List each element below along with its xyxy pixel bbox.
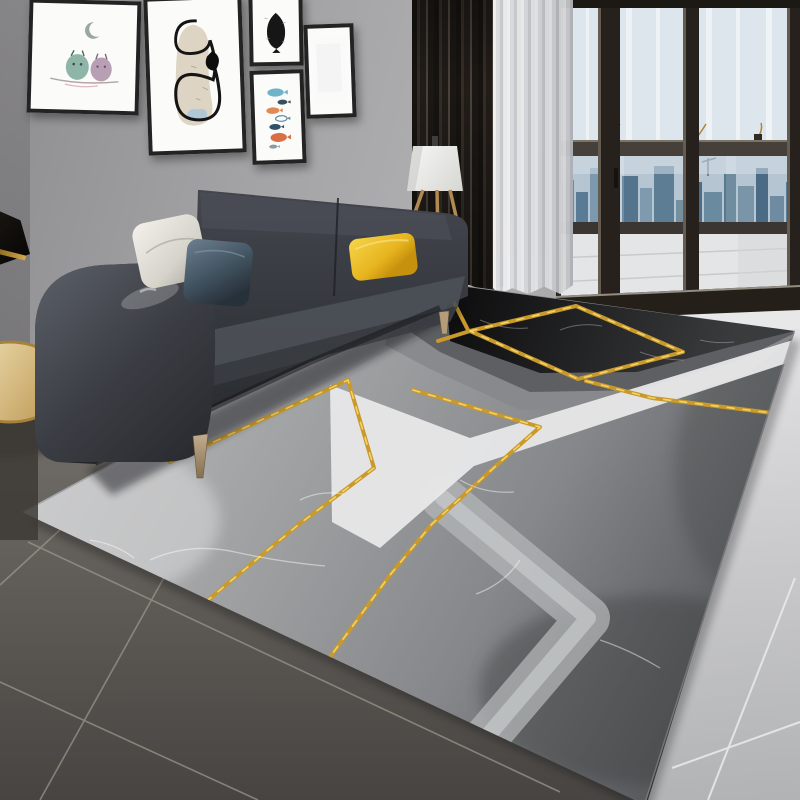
gallery-frame-fish-silhouette <box>248 0 303 66</box>
gallery-frame-fish-school <box>249 69 306 165</box>
owl-print-art <box>37 9 131 105</box>
fish-silhouette-art <box>258 3 295 58</box>
branch <box>50 78 118 84</box>
rug-light-chevron <box>440 498 588 792</box>
balcony-sliding-door <box>556 0 800 340</box>
balcony-view <box>556 0 800 340</box>
sheer-curtain <box>493 0 573 294</box>
balcony-window-sill <box>556 222 800 234</box>
gallery-frame-blank-print <box>303 23 356 119</box>
abstract-line-art <box>157 7 234 143</box>
marble-veins <box>90 480 660 668</box>
living-room-scene: Modern living room: charcoal fabric sofa… <box>0 0 800 800</box>
crescent-moon <box>85 22 100 39</box>
door-handle <box>614 168 618 188</box>
dark-curtain <box>412 0 504 292</box>
gallery-frame-abstract-print <box>143 0 246 156</box>
floor-grout-lines <box>0 495 560 800</box>
blank-canvas <box>313 32 348 109</box>
balcony-window-transom <box>556 140 800 156</box>
owl-teal <box>65 50 89 80</box>
fish-school-art <box>259 78 298 155</box>
light-floor-grout <box>672 578 800 800</box>
gallery-frame-owl-print <box>27 0 142 115</box>
owl-mauve <box>90 54 112 82</box>
